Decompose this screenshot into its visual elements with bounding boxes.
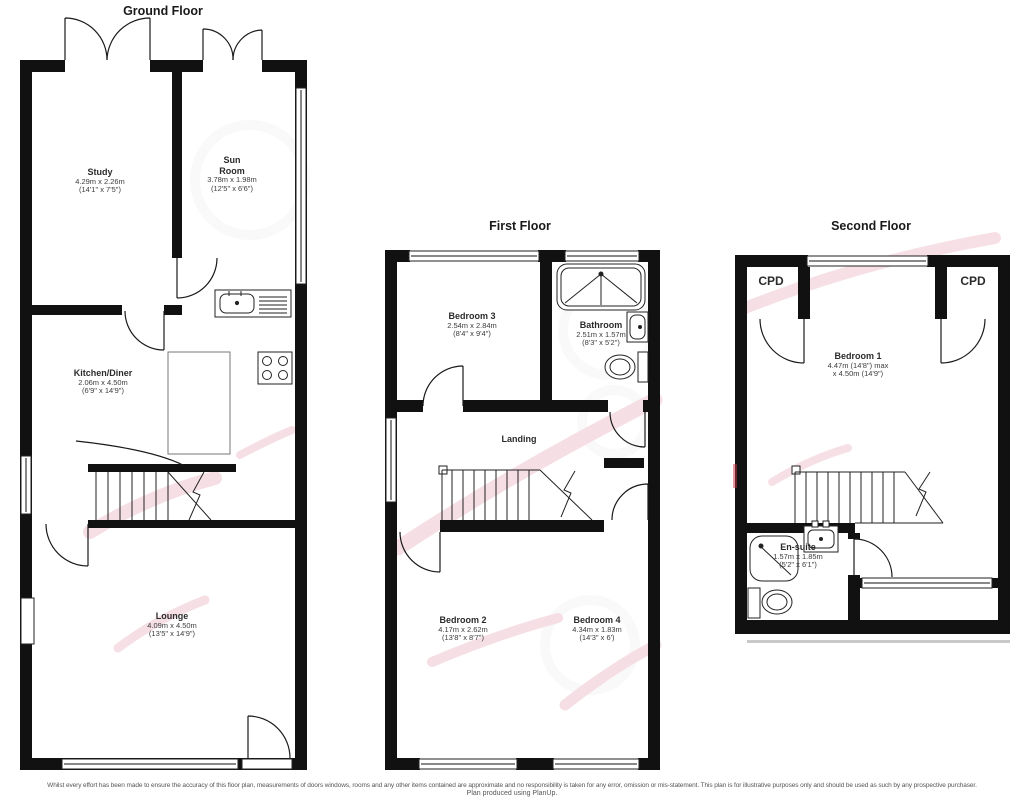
ground-floor-title: Ground Floor <box>123 4 203 18</box>
disclaimer: Whilst every effort has been made to ens… <box>0 782 1024 797</box>
room-dim-imperial: (5'2" x 6'1") <box>773 561 823 570</box>
room-label-bedroom-1: Bedroom 1 4.47m (14'8") max x 4.50m (14'… <box>828 351 889 379</box>
room-label-cpd-right: CPD <box>960 274 985 288</box>
disclaimer-line-2: Plan produced using PlanUp. <box>0 790 1024 797</box>
room-label-bedroom-2: Bedroom 2 4.17m x 2.62m (13'8" x 8'7") <box>438 615 488 643</box>
room-label-kitchen-diner: Kitchen/Diner 2.06m x 4.50m (6'9" x 14'9… <box>74 368 133 396</box>
ensuite-toilet-cistern <box>748 588 760 618</box>
room-name: Landing <box>502 434 537 445</box>
watermark-red-dash <box>733 464 737 488</box>
ground-floor-walls <box>20 60 307 770</box>
room-label-cpd-left: CPD <box>758 274 783 288</box>
floorplan-drawing <box>0 0 1024 805</box>
disclaimer-line-1: Whilst every effort has been made to ens… <box>0 782 1024 789</box>
floorplan-page: Ground Floor First Floor Second Floor St… <box>0 0 1024 805</box>
room-label-sun-room: Sun Room 3.78m x 1.98m (12'5" x 6'6") <box>207 155 257 194</box>
room-dim-imperial: (6'9" x 14'9") <box>74 387 133 396</box>
first-floor-title: First Floor <box>489 219 551 233</box>
room-name: CPD <box>758 274 783 288</box>
kitchen-island <box>168 352 230 454</box>
shadow-line <box>747 640 1010 643</box>
room-dim-imperial: (14'1" x 7'5") <box>75 186 125 195</box>
room-dim-imperial: (14'3" x 6') <box>572 634 622 643</box>
toilet-cistern <box>638 352 648 382</box>
room-dim-imperial: (8'3" x 5'2") <box>576 339 626 348</box>
room-label-bathroom: Bathroom 2.51m x 1.57m (8'3" x 5'2") <box>576 320 626 348</box>
room-dim-imperial: (13'5" x 14'9") <box>147 630 197 639</box>
room-label-ensuite: En-suite 1.57m x 1.85m (5'2" x 6'1") <box>773 542 823 570</box>
room-dim-imperial: (8'4" x 9'4") <box>447 330 497 339</box>
room-dim-imperial: (12'5" x 6'6") <box>207 185 257 194</box>
kitchen-fixtures <box>168 290 292 454</box>
room-label-lounge: Lounge 4.09m x 4.50m (13'5" x 14'9") <box>147 611 197 639</box>
hob <box>258 352 292 384</box>
ground-floor-windows <box>21 88 306 769</box>
room-dim-imperial: (13'8" x 8'7") <box>438 634 488 643</box>
room-name: Sun Room <box>211 155 253 176</box>
second-floor-title: Second Floor <box>831 219 911 233</box>
room-dim-imperial: x 4.50m (14'9") <box>828 370 889 379</box>
second-floor-stairs <box>792 466 943 523</box>
room-name: CPD <box>960 274 985 288</box>
room-label-bedroom-4: Bedroom 4 4.34m x 1.83m (14'3" x 6') <box>572 615 622 643</box>
room-label-bedroom-3: Bedroom 3 2.54m x 2.84m (8'4" x 9'4") <box>447 311 497 339</box>
room-label-landing: Landing <box>502 434 537 445</box>
room-label-study: Study 4.29m x 2.26m (14'1" x 7'5") <box>75 167 125 195</box>
